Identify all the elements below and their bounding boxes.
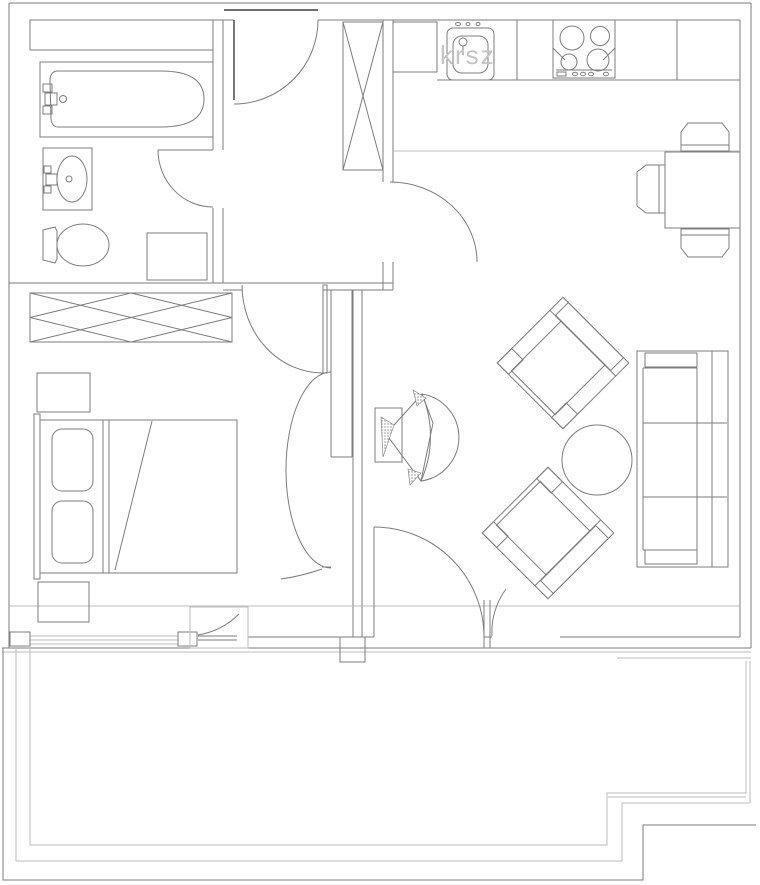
entry-door: [224, 10, 318, 104]
bathtub: [40, 62, 213, 137]
blanket-fold: [115, 421, 152, 570]
corner-cabinet: [393, 22, 437, 72]
window-jamb-left: [10, 632, 30, 646]
bedroom-door: [281, 372, 331, 579]
entry-hall: [343, 22, 383, 170]
hall-wardrobe-x: [343, 22, 383, 170]
toilet: [43, 224, 109, 266]
walls: [2, 3, 751, 662]
balcony-railing-middle: [16, 648, 750, 861]
dining-table: [665, 152, 740, 228]
nightstand-top: [37, 373, 90, 412]
balcony-railing-inner: [30, 648, 746, 845]
sofa-arm-bottom: [645, 550, 697, 564]
floor-plan-drawing: krsz: [0, 0, 760, 885]
armchair-lower: [482, 467, 614, 599]
window-jamb-right: [178, 632, 197, 646]
tv-swivel-arc: [421, 394, 459, 481]
pillar: [340, 637, 365, 662]
balcony-railing-inner-2: [608, 661, 750, 803]
stove-knobs: [557, 72, 609, 76]
pillow-left: [52, 429, 93, 491]
round-coffee-table: [562, 425, 632, 495]
doors: [158, 10, 506, 637]
armchair-upper: [497, 297, 629, 429]
door-center-jamb: [484, 600, 490, 648]
bedroom: [30, 293, 237, 622]
bedroom-balcony-window: [30, 636, 178, 644]
floor-plan-page: krsz: [0, 0, 760, 885]
bath-faucet: [43, 84, 67, 114]
pillow-right: [52, 501, 93, 563]
burner: [587, 49, 609, 71]
kitchen: krsz: [393, 20, 740, 257]
hall-to-living-door: [242, 285, 327, 373]
dining-chair-bottom: [681, 229, 729, 257]
burner: [561, 54, 577, 70]
sink-label: krsz: [440, 40, 496, 70]
balcony: [3, 648, 756, 880]
dining-chair-left: [637, 165, 665, 213]
nightstand-bottom: [38, 582, 89, 622]
bathroom-door: [158, 150, 213, 207]
casement-window: [190, 607, 248, 648]
burner: [591, 27, 610, 46]
washing-machine: [147, 233, 207, 280]
dining-chair-top: [681, 123, 729, 151]
windows: [10, 600, 490, 648]
kitchen-door: [390, 182, 477, 262]
sofa-arm-top: [645, 353, 697, 367]
stove: [553, 20, 615, 78]
double-bed: [34, 414, 237, 579]
washbasin: [43, 148, 92, 210]
living-room: [375, 297, 728, 599]
wall-tv: [375, 390, 459, 485]
headboard: [34, 414, 40, 579]
sofa: [637, 351, 728, 567]
bedroom-wardrobe-x: [30, 293, 232, 342]
burner: [560, 26, 584, 50]
living-balcony-door: [374, 527, 506, 637]
bathroom-shelf: [30, 20, 213, 50]
